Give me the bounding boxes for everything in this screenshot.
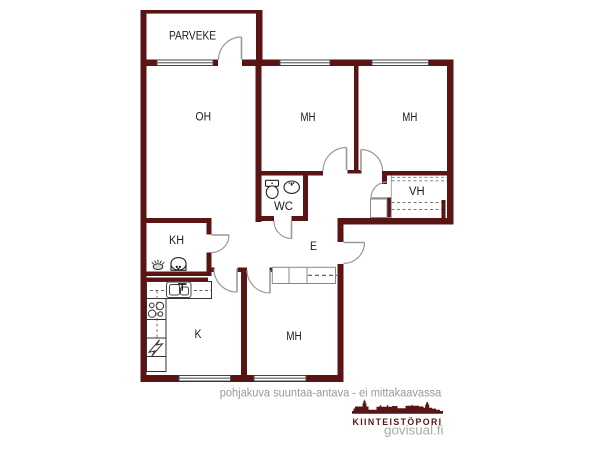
svg-text:K: K <box>195 327 202 341</box>
svg-text:MH: MH <box>402 110 417 124</box>
svg-text:VH: VH <box>409 184 425 198</box>
svg-text:KH: KH <box>169 233 184 247</box>
svg-text:pohjakuva suuntaa-antava - ei: pohjakuva suuntaa-antava - ei mittakaava… <box>220 388 442 400</box>
svg-text:E: E <box>310 239 317 253</box>
svg-text:MH: MH <box>286 329 302 343</box>
svg-text:MH: MH <box>301 110 316 124</box>
svg-text:PARVEKE: PARVEKE <box>169 29 216 43</box>
svg-text:govisual.fi: govisual.fi <box>384 423 444 438</box>
svg-text:WC: WC <box>274 199 293 213</box>
svg-text:OH: OH <box>196 110 212 124</box>
